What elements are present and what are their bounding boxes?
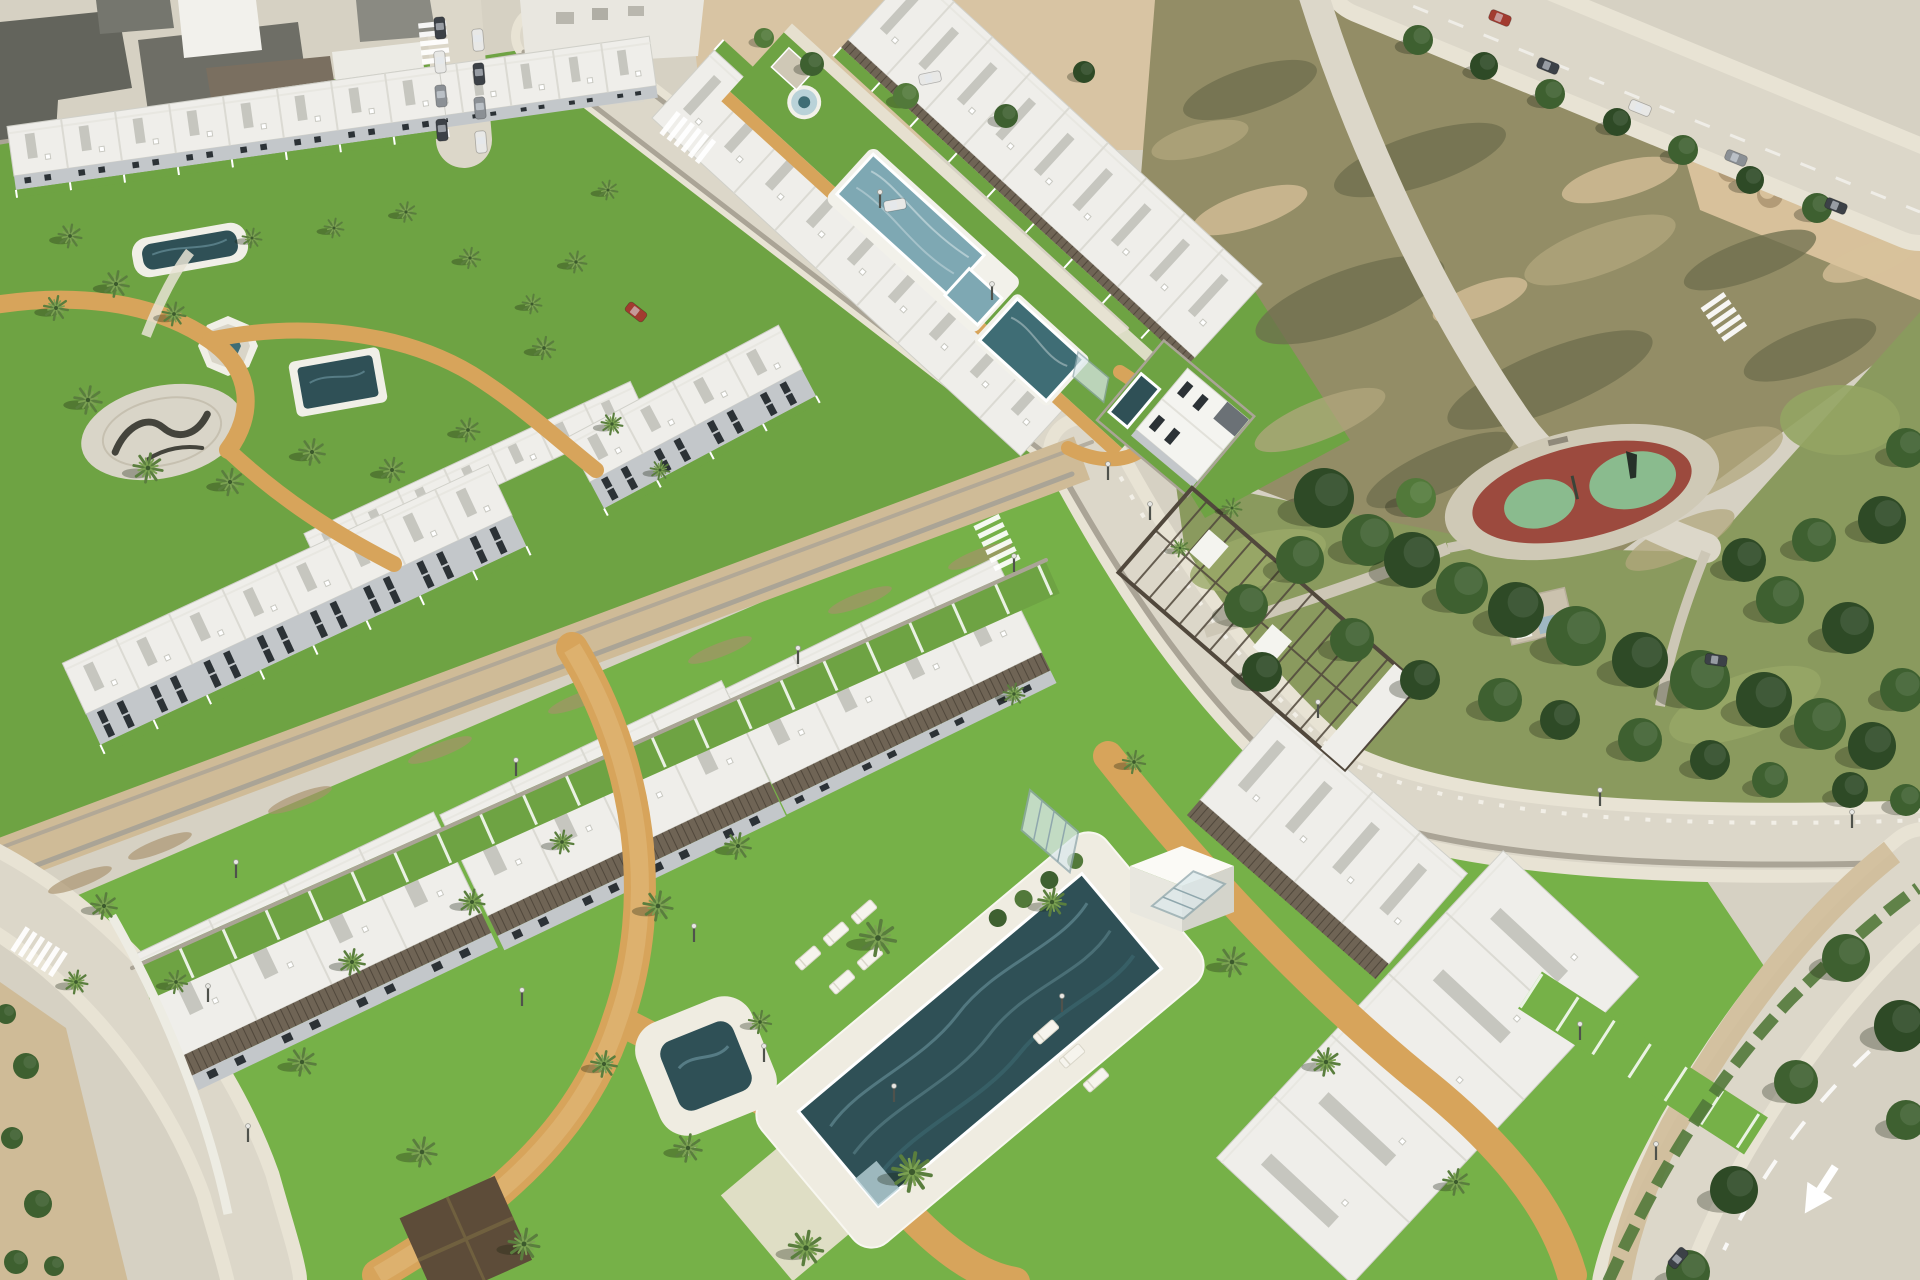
rooftop-unit	[628, 6, 644, 16]
bush	[24, 1190, 52, 1218]
aerial-render	[0, 0, 1920, 1280]
bush	[44, 1256, 64, 1276]
car	[435, 85, 448, 108]
car	[475, 131, 488, 154]
urban-building	[96, 0, 174, 34]
car	[474, 97, 487, 120]
car	[472, 29, 485, 52]
rooftop-unit	[592, 8, 608, 20]
bush	[4, 1250, 28, 1274]
bush	[1, 1127, 23, 1149]
car	[436, 119, 449, 142]
car	[434, 17, 447, 40]
bush	[13, 1053, 39, 1079]
car	[434, 51, 447, 74]
aerial-render-stage	[0, 0, 1920, 1280]
urban-building	[178, 0, 262, 58]
rooftop-unit	[556, 12, 574, 24]
car	[473, 63, 486, 86]
grass-patch	[1780, 385, 1900, 455]
